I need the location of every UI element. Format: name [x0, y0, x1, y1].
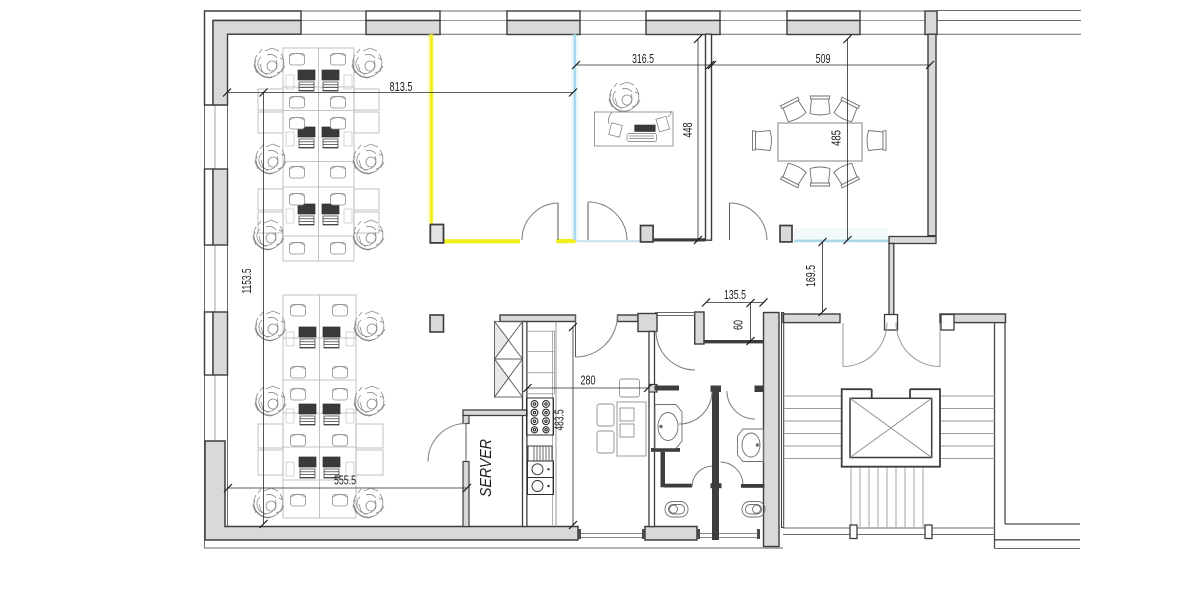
svg-text:555.5: 555.5: [334, 474, 356, 488]
svg-text:448: 448: [681, 122, 695, 137]
svg-text:483.5: 483.5: [553, 409, 567, 430]
svg-text:280: 280: [581, 374, 596, 388]
svg-text:60: 60: [732, 320, 746, 330]
svg-text:509: 509: [816, 52, 831, 66]
svg-text:316.5: 316.5: [632, 52, 654, 66]
svg-text:1153.5: 1153.5: [240, 268, 254, 293]
svg-text:813.5: 813.5: [390, 80, 413, 94]
svg-text:SERVER: SERVER: [478, 439, 495, 497]
svg-text:169.5: 169.5: [804, 265, 818, 287]
svg-text:135.5: 135.5: [724, 288, 746, 302]
svg-text:485: 485: [830, 130, 844, 146]
